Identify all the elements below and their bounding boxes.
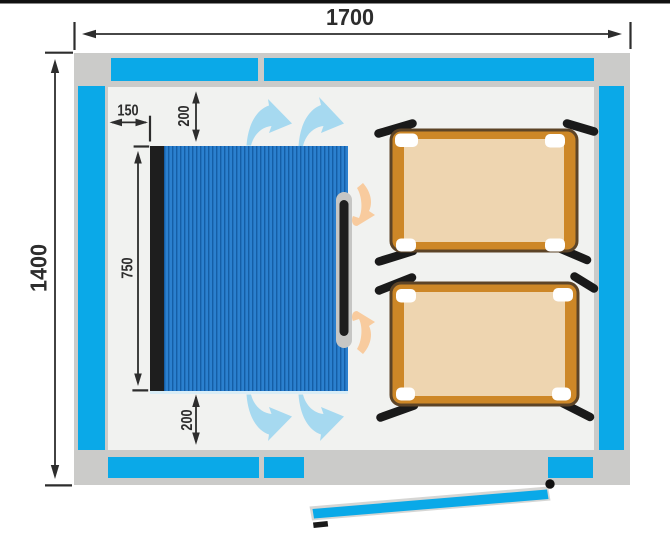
svg-text:200: 200: [179, 409, 196, 430]
svg-text:750: 750: [119, 257, 136, 278]
svg-text:200: 200: [176, 105, 193, 126]
svg-text:150: 150: [117, 102, 138, 119]
svg-text:1700: 1700: [326, 4, 374, 30]
svg-text:1400: 1400: [26, 244, 52, 292]
